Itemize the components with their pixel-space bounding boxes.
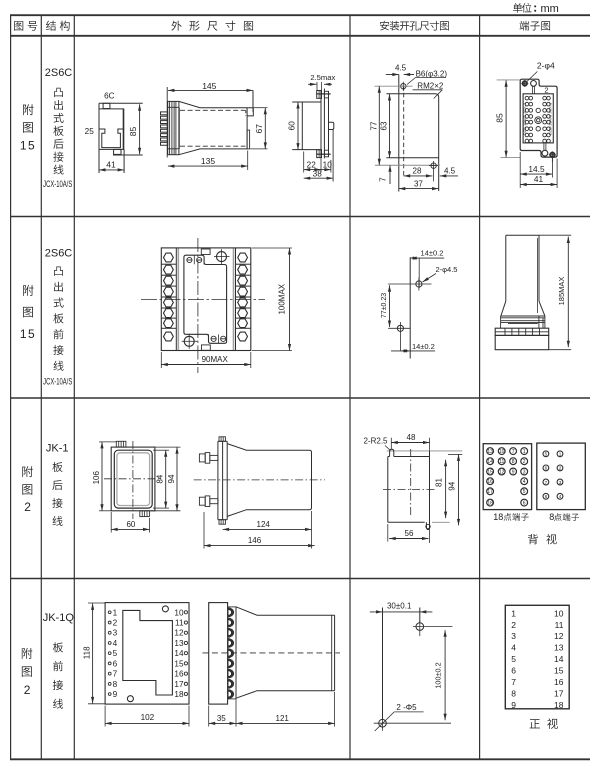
svg-text:13: 13 [554, 643, 564, 653]
svg-text:135: 135 [201, 156, 215, 166]
svg-text:14: 14 [487, 459, 493, 465]
svg-text:1: 1 [559, 452, 562, 457]
svg-text:13: 13 [174, 639, 184, 648]
svg-text:15: 15 [554, 666, 564, 676]
svg-text:38: 38 [313, 170, 323, 179]
svg-text:14: 14 [554, 654, 564, 664]
svg-text:8: 8 [512, 459, 515, 465]
svg-text:41: 41 [534, 174, 544, 184]
svg-text:4: 4 [511, 643, 516, 653]
svg-text:JK-1: JK-1 [46, 443, 69, 455]
svg-text:2: 2 [523, 459, 526, 465]
svg-text:15: 15 [20, 138, 36, 152]
svg-text:77±0.23: 77±0.23 [381, 293, 388, 318]
svg-text:5: 5 [545, 452, 548, 457]
svg-text:2-φ4: 2-φ4 [537, 61, 555, 71]
svg-text:15: 15 [487, 469, 493, 475]
svg-text:6: 6 [511, 666, 516, 676]
svg-text:5: 5 [511, 654, 516, 664]
svg-text:JCX-10A/S: JCX-10A/S [43, 376, 72, 387]
svg-text:2.5max: 2.5max [310, 73, 335, 82]
svg-text:2: 2 [113, 619, 118, 628]
svg-text:11: 11 [499, 459, 504, 465]
svg-text:5: 5 [523, 489, 526, 495]
svg-text:12: 12 [554, 631, 564, 641]
svg-text:41: 41 [106, 160, 116, 170]
svg-text:67: 67 [254, 124, 264, 134]
svg-text:77: 77 [370, 121, 379, 130]
svg-text:60: 60 [287, 121, 297, 131]
svg-text:2: 2 [544, 86, 548, 95]
svg-text:9: 9 [512, 469, 515, 475]
svg-text:56: 56 [405, 529, 414, 538]
svg-text:18: 18 [554, 700, 564, 710]
svg-text:7: 7 [379, 177, 388, 182]
svg-text:13: 13 [487, 449, 493, 455]
svg-text:102: 102 [141, 713, 155, 722]
svg-text:6: 6 [545, 466, 548, 471]
svg-text:12: 12 [174, 629, 184, 638]
svg-text:mm: mm [541, 3, 559, 15]
svg-text:185MAX: 185MAX [557, 277, 566, 306]
svg-text:6: 6 [113, 659, 118, 668]
svg-text:106: 106 [92, 470, 101, 484]
svg-text:3: 3 [559, 480, 562, 485]
svg-text:2-R2.5: 2-R2.5 [363, 436, 388, 445]
svg-text:2: 2 [24, 683, 31, 697]
svg-text:18: 18 [174, 690, 184, 699]
svg-text:121: 121 [276, 714, 290, 723]
svg-text:16: 16 [554, 677, 564, 687]
svg-text:B6(φ3.2): B6(φ3.2) [416, 69, 448, 78]
svg-text:18: 18 [487, 501, 493, 507]
svg-text:3: 3 [113, 629, 118, 638]
svg-text:100±0.2: 100±0.2 [433, 662, 442, 688]
svg-text:11: 11 [555, 620, 564, 630]
svg-text:16: 16 [174, 670, 184, 679]
svg-text:2: 2 [559, 466, 562, 471]
svg-text:14±0.2: 14±0.2 [421, 248, 444, 257]
svg-text:4: 4 [113, 639, 118, 648]
svg-text:4.5: 4.5 [444, 167, 456, 176]
svg-text:7: 7 [512, 449, 515, 455]
svg-text:4: 4 [523, 479, 526, 485]
svg-text:14: 14 [174, 649, 184, 658]
svg-text:48: 48 [407, 433, 416, 442]
svg-text:85: 85 [128, 127, 138, 137]
svg-text:11: 11 [175, 619, 184, 628]
svg-text:9: 9 [113, 690, 118, 699]
svg-text:9: 9 [511, 700, 516, 710]
svg-text:85: 85 [495, 113, 505, 123]
svg-text:JCX-10A/S: JCX-10A/S [43, 179, 72, 190]
svg-text:4.5: 4.5 [395, 64, 407, 73]
svg-text:16: 16 [487, 479, 493, 485]
svg-text:17: 17 [174, 680, 184, 689]
svg-text:5: 5 [113, 649, 118, 658]
svg-text:7: 7 [113, 670, 118, 679]
svg-text:81: 81 [435, 478, 444, 487]
svg-text:100MAX: 100MAX [278, 283, 287, 314]
svg-text:1: 1 [113, 608, 118, 617]
svg-text:2-φ4.5: 2-φ4.5 [436, 265, 458, 274]
svg-text:14±0.2: 14±0.2 [412, 342, 435, 351]
svg-text:4: 4 [559, 494, 562, 499]
svg-text:1: 1 [523, 449, 526, 455]
svg-text:145: 145 [202, 81, 216, 91]
svg-text:146: 146 [248, 536, 262, 545]
svg-text:6: 6 [523, 501, 526, 507]
svg-text:35: 35 [217, 714, 226, 723]
svg-text:2: 2 [511, 620, 516, 630]
svg-text:JK-1Q: JK-1Q [43, 612, 75, 624]
svg-text:37: 37 [414, 179, 423, 188]
svg-text:28: 28 [413, 167, 422, 176]
svg-text:10: 10 [554, 608, 564, 618]
svg-text:94: 94 [167, 474, 176, 483]
svg-text:14.5: 14.5 [528, 164, 545, 174]
svg-text:2S6C: 2S6C [45, 248, 73, 260]
svg-text:25: 25 [85, 127, 95, 136]
svg-text:17: 17 [487, 489, 493, 495]
svg-text:8: 8 [511, 689, 516, 699]
svg-text:124: 124 [257, 520, 271, 529]
svg-text:94: 94 [447, 481, 456, 490]
svg-text:10: 10 [499, 449, 505, 455]
svg-text:22: 22 [307, 161, 317, 170]
svg-text:3: 3 [511, 631, 516, 641]
svg-text:2: 2 [24, 500, 31, 514]
svg-text:6C: 6C [104, 92, 115, 101]
svg-text:7: 7 [511, 677, 516, 687]
svg-text:63: 63 [380, 121, 389, 130]
svg-text:2S6C: 2S6C [45, 67, 73, 79]
svg-text:30±0.1: 30±0.1 [387, 601, 412, 610]
svg-text:90MAX: 90MAX [202, 355, 229, 364]
svg-text:12: 12 [499, 469, 505, 475]
svg-text:8: 8 [545, 494, 548, 499]
svg-text:18: 18 [493, 512, 503, 522]
svg-text:8: 8 [113, 680, 118, 689]
svg-text:2 -Φ5: 2 -Φ5 [396, 703, 417, 712]
svg-text:60: 60 [126, 520, 135, 529]
svg-text:3: 3 [523, 469, 526, 475]
svg-text:7: 7 [545, 480, 548, 485]
svg-text:15: 15 [20, 327, 36, 341]
svg-text:118: 118 [82, 646, 91, 659]
svg-text:84: 84 [156, 474, 165, 483]
svg-text:RM2×2: RM2×2 [417, 82, 444, 91]
svg-text:15: 15 [174, 659, 184, 668]
svg-text:10: 10 [174, 608, 184, 617]
svg-text:17: 17 [554, 689, 564, 699]
svg-text:8: 8 [549, 512, 554, 522]
svg-text:10: 10 [323, 161, 333, 170]
svg-text:1: 1 [511, 608, 516, 618]
